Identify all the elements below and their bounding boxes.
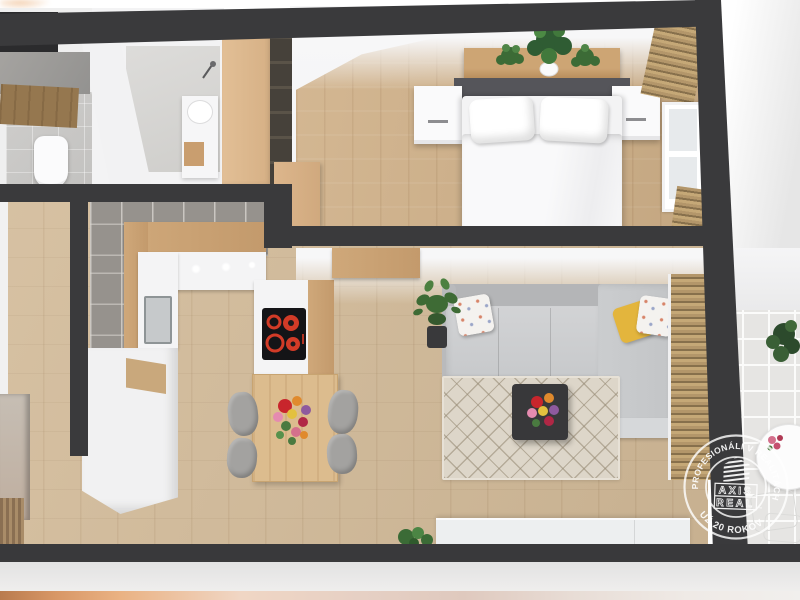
badge-brand-word-1: AXIS [718, 484, 753, 497]
wall-bedroom-living-divider [290, 226, 714, 246]
fern-plant [412, 272, 462, 352]
bottom-light-strip [0, 562, 800, 591]
axis-real-watermark-badge: PROFESIONÁLI V REALITÁCH UŽ 20 ROKOV AX [679, 430, 793, 544]
bed-pillow-left [469, 96, 536, 144]
axis-real-building-icon [717, 453, 756, 483]
sofa-seat-cushion-line-2 [550, 308, 551, 384]
hob-island-wood-strip [308, 280, 334, 378]
shower-head-icon [200, 60, 216, 80]
bed-duvet [462, 134, 622, 234]
living-sideboard [332, 248, 420, 278]
wall-hallway-north [0, 184, 270, 202]
toilet [34, 136, 68, 188]
bed-pillow-right [539, 96, 609, 143]
grass-plant-right [568, 42, 602, 78]
sofa-seat-cushion-line-1 [498, 308, 499, 384]
hallway-left-wall-face [0, 196, 8, 396]
entry-wood-bench [0, 84, 79, 128]
floorplan-render-canvas: PROFESIONÁLI V REALITÁCH UŽ 20 ROKOV AX [0, 0, 800, 600]
badge-brand-word-2: REAL [716, 497, 755, 510]
tv-lowboard-divider [634, 520, 635, 546]
bathroom-sink [187, 100, 213, 124]
bottom-copper-strip [0, 591, 800, 600]
balcony-plant [764, 316, 800, 370]
coffee-table-bouquet [522, 388, 564, 432]
nightstand-left-handle [428, 120, 448, 123]
window-pane-top [669, 109, 697, 151]
badge-trademark: ™ [758, 506, 762, 511]
wall-corner-stub [264, 184, 292, 248]
outer-wall-bottom [0, 544, 800, 564]
induction-hob [262, 308, 306, 360]
dining-table-bouquet [268, 390, 318, 448]
tall-wardrobe-tan [222, 16, 274, 186]
hallway-wardrobe-slats [0, 498, 24, 548]
wardrobe-shelf-column [270, 16, 292, 186]
wall-hallway-kitchen-divider [70, 198, 88, 456]
nightstand-left [414, 86, 462, 144]
vanity-wood-drawer [184, 142, 204, 166]
kitchen-sink [144, 296, 172, 344]
dining-chair-bottom-right [326, 433, 359, 475]
nightstand-right-handle [626, 118, 646, 121]
